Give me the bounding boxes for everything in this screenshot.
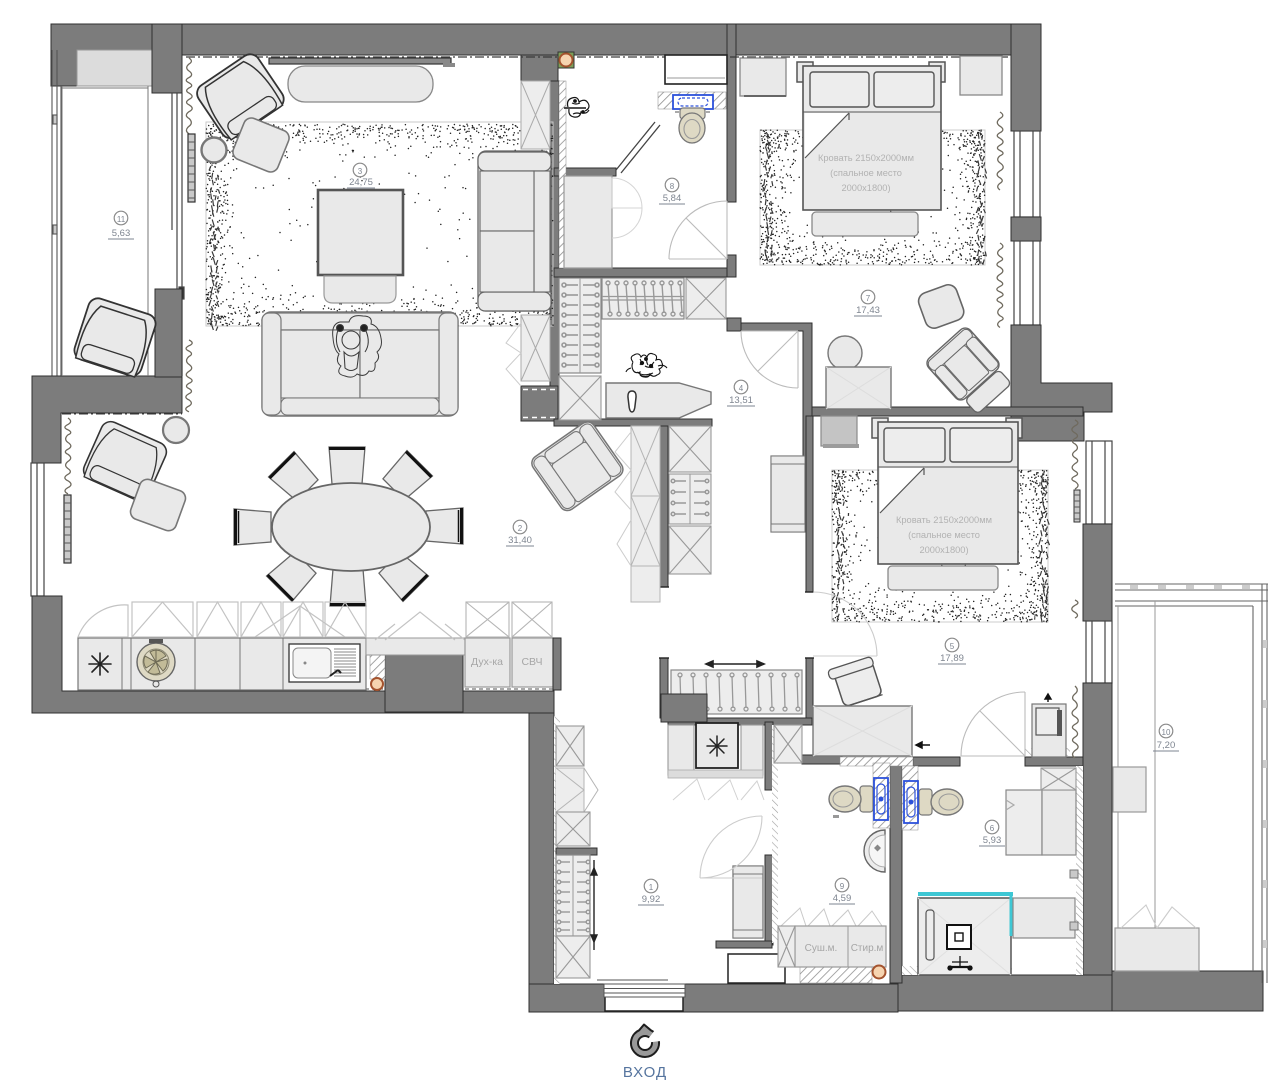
svg-text:Стир.м: Стир.м xyxy=(851,943,884,954)
svg-text:5,63: 5,63 xyxy=(112,228,131,239)
svg-text:4: 4 xyxy=(739,384,744,393)
svg-text:2: 2 xyxy=(518,524,523,533)
svg-text:(спальное место: (спальное место xyxy=(830,168,902,178)
svg-text:(спальное место: (спальное место xyxy=(908,530,980,540)
svg-text:2000х1800): 2000х1800) xyxy=(841,183,890,193)
svg-text:9: 9 xyxy=(840,882,845,891)
svg-text:7,20: 7,20 xyxy=(1157,740,1176,751)
svg-text:5,84: 5,84 xyxy=(663,193,682,204)
svg-text:Суш.м.: Суш.м. xyxy=(805,943,838,954)
svg-text:10: 10 xyxy=(1162,728,1171,737)
svg-text:31,40: 31,40 xyxy=(508,535,532,546)
svg-text:5: 5 xyxy=(950,642,955,651)
svg-text:8: 8 xyxy=(670,182,675,191)
svg-text:17,43: 17,43 xyxy=(856,305,880,316)
svg-text:6: 6 xyxy=(990,824,995,833)
svg-text:1: 1 xyxy=(649,883,654,892)
svg-text:ВХОД: ВХОД xyxy=(623,1064,667,1081)
svg-text:4,59: 4,59 xyxy=(833,893,852,904)
svg-text:2000х1800): 2000х1800) xyxy=(919,545,968,555)
svg-text:17,89: 17,89 xyxy=(940,653,964,664)
svg-text:3: 3 xyxy=(358,167,363,176)
svg-text:9,92: 9,92 xyxy=(642,894,661,905)
svg-text:24,75: 24,75 xyxy=(349,177,373,188)
svg-text:Кровать 2150х2000мм: Кровать 2150х2000мм xyxy=(818,153,914,163)
svg-text:СВЧ: СВЧ xyxy=(521,656,542,668)
svg-text:Дух-ка: Дух-ка xyxy=(471,656,503,668)
svg-text:11: 11 xyxy=(117,215,126,224)
svg-text:7: 7 xyxy=(866,294,871,303)
svg-text:5,93: 5,93 xyxy=(983,835,1002,846)
svg-text:Кровать 2150х2000мм: Кровать 2150х2000мм xyxy=(896,515,992,525)
svg-text:13,51: 13,51 xyxy=(729,395,753,406)
